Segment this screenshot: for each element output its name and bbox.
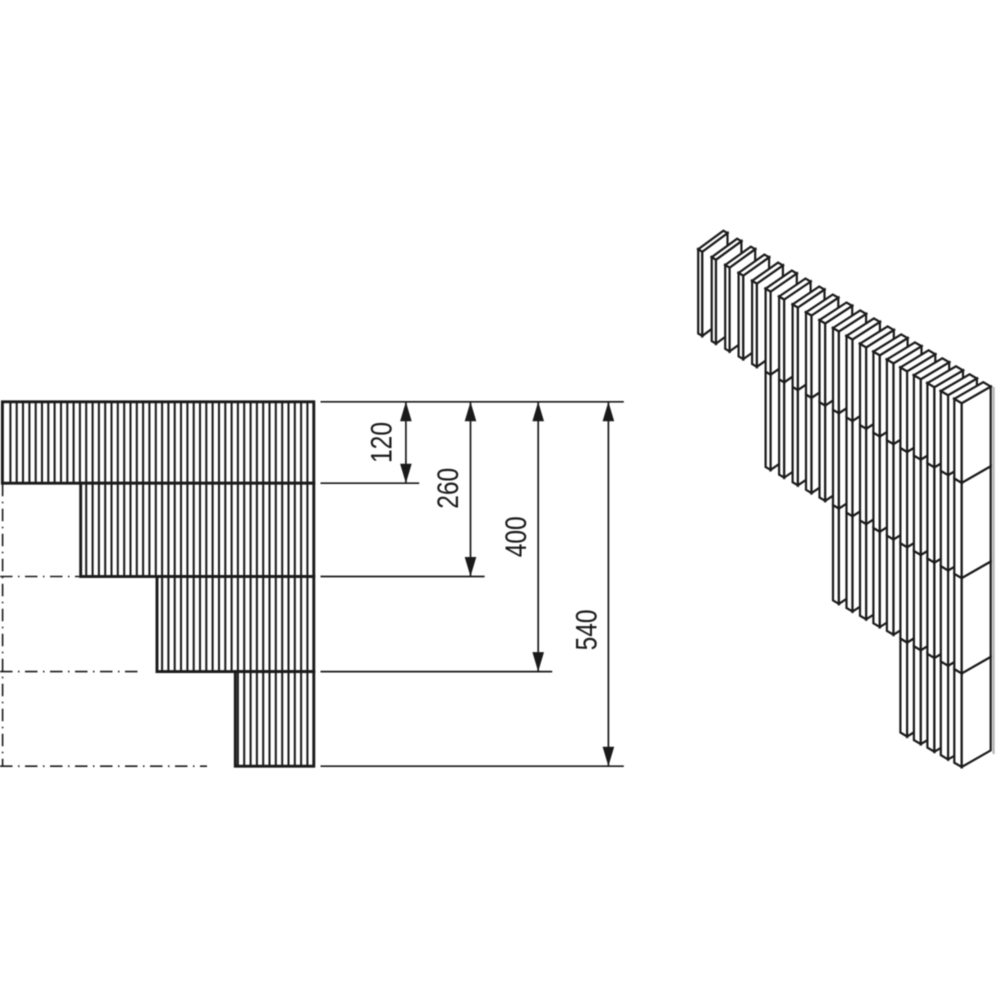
- svg-text:260: 260: [432, 468, 465, 509]
- svg-text:540: 540: [570, 609, 603, 650]
- svg-text:120: 120: [366, 422, 399, 463]
- svg-text:400: 400: [500, 516, 533, 557]
